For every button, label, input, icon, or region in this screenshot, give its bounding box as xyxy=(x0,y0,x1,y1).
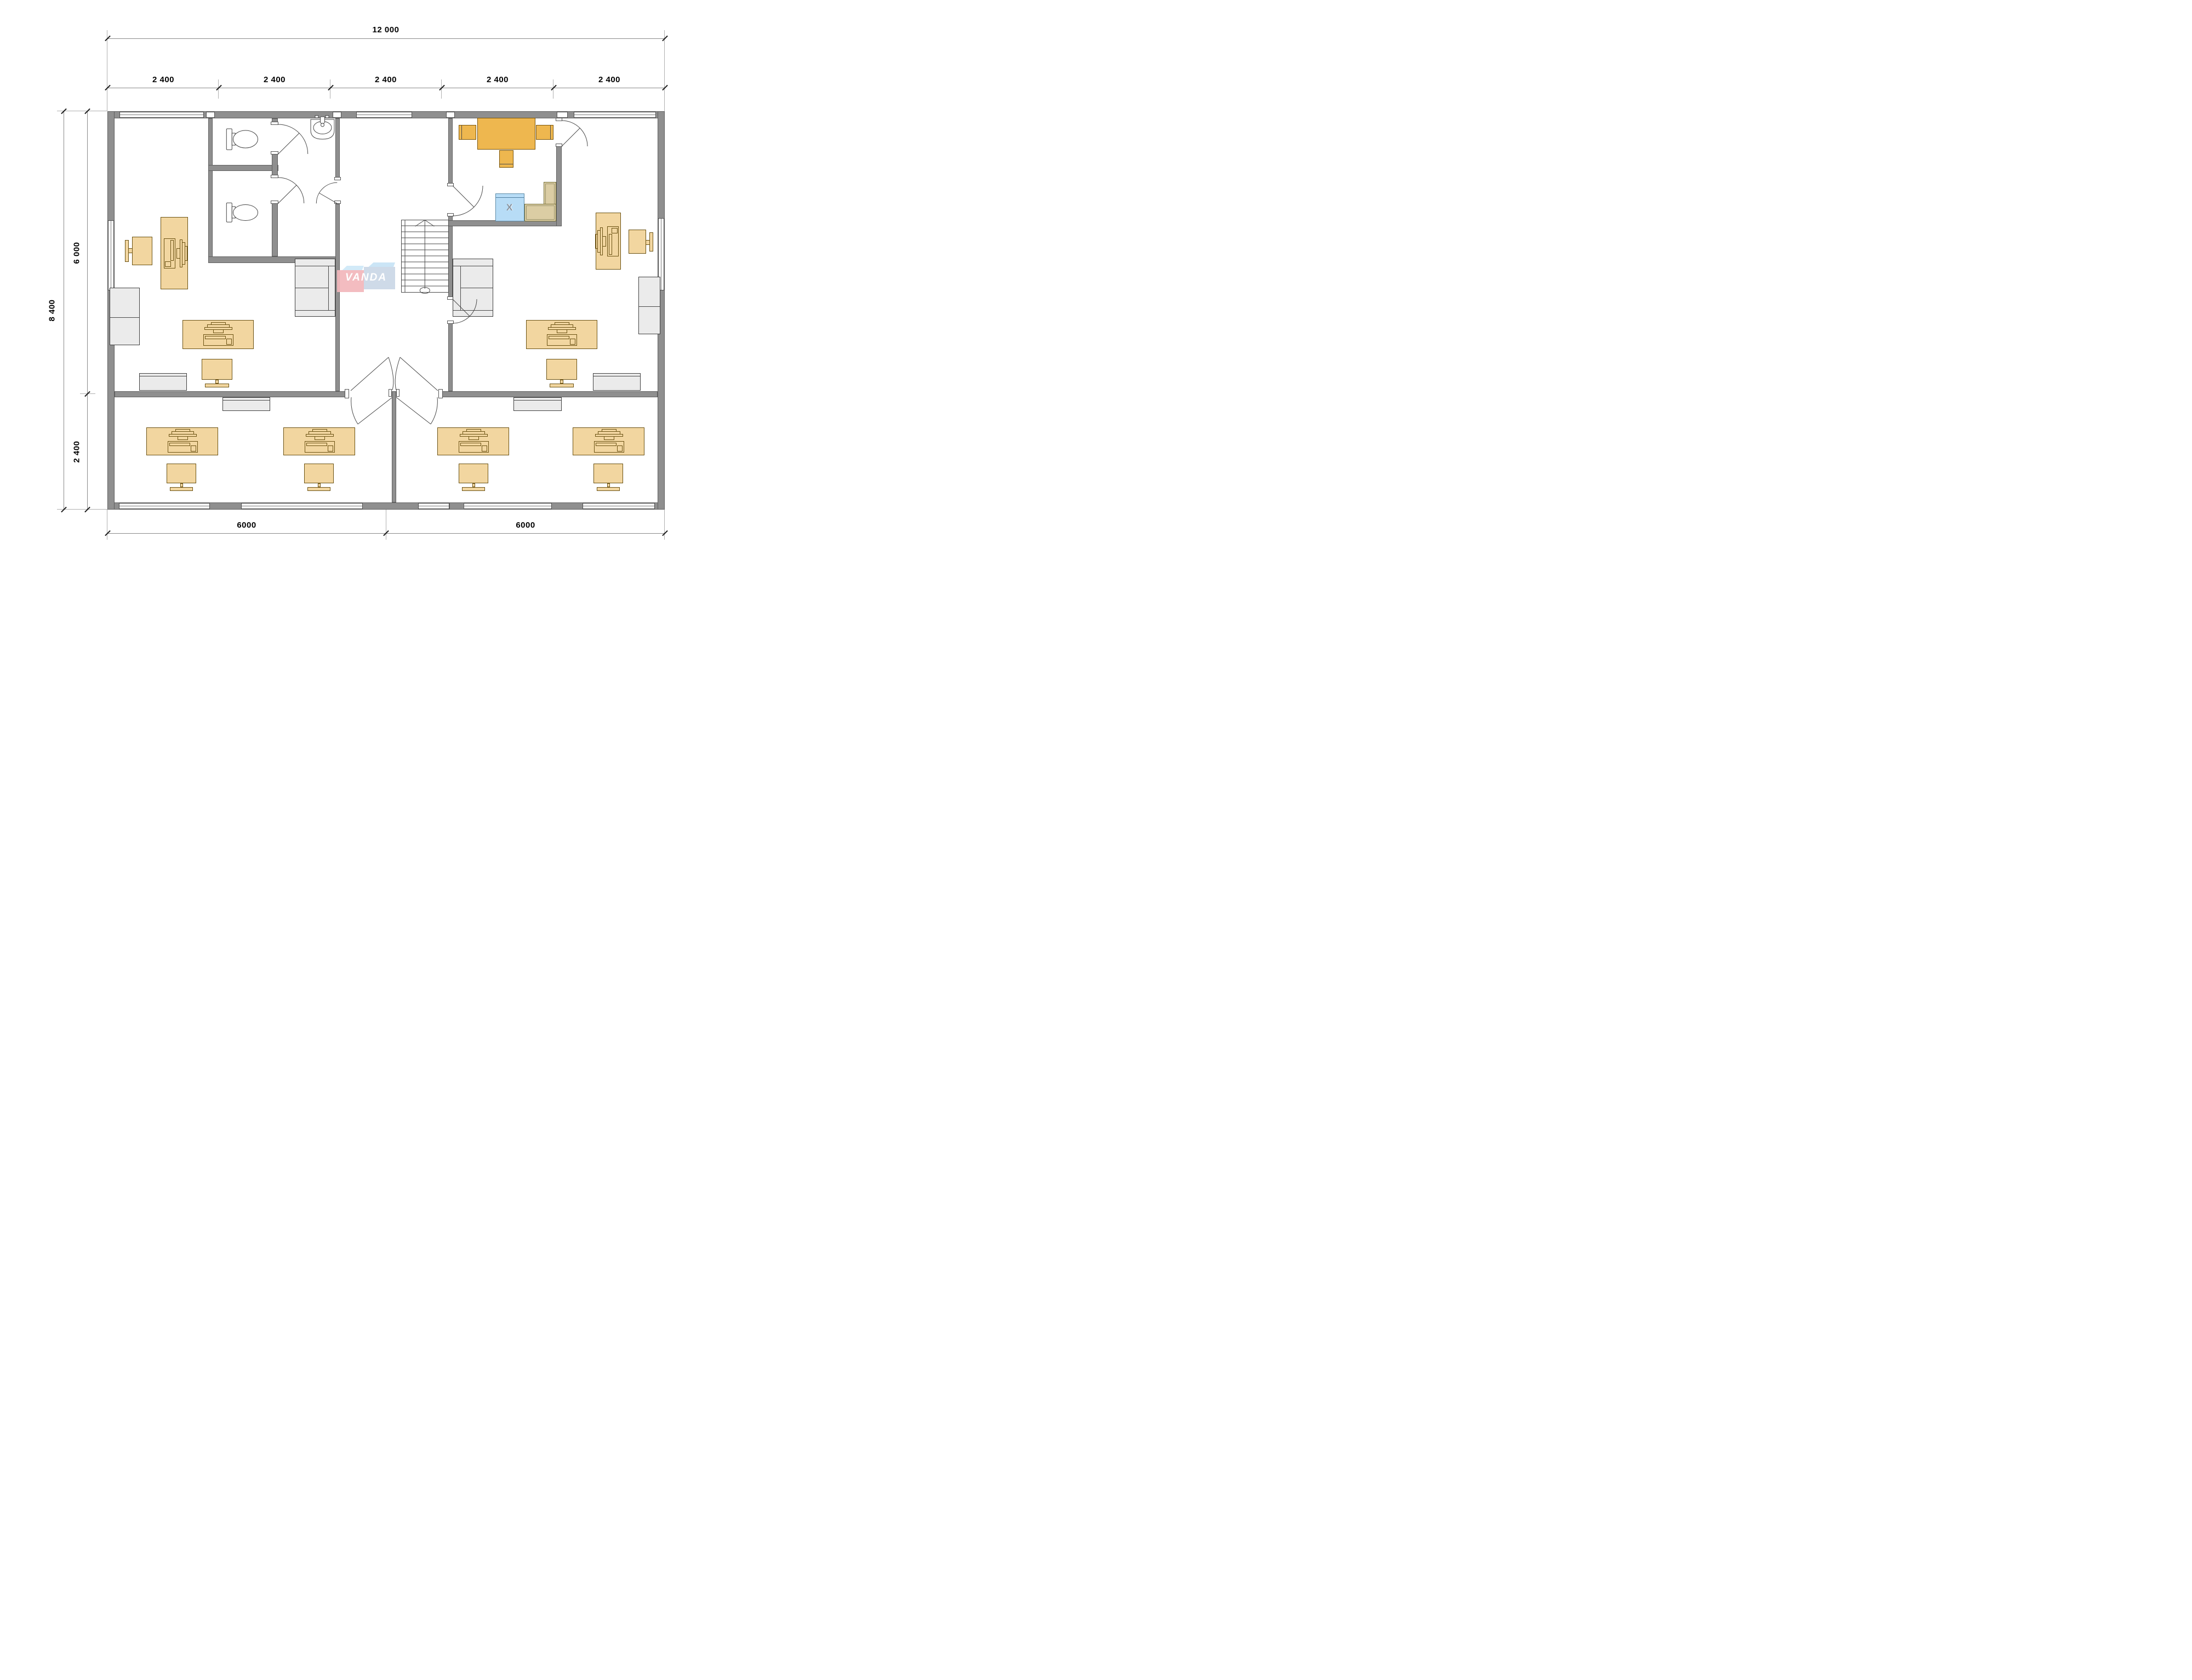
dimension-label-left-segment: 6 000 xyxy=(72,237,82,270)
office-chair-seat xyxy=(459,464,488,483)
computer-icon xyxy=(458,429,489,456)
sideboard xyxy=(139,373,187,391)
office-chair-seat xyxy=(304,464,334,483)
office-chair-base xyxy=(597,487,620,491)
desk xyxy=(437,427,509,455)
door-jamb xyxy=(556,144,562,147)
toilet xyxy=(226,129,258,150)
door-jamb xyxy=(438,389,443,398)
office-chair-stem xyxy=(560,380,563,384)
dimension-label-left-segment: 2 400 xyxy=(72,436,82,468)
kitchen-chair xyxy=(536,125,553,140)
wall-post xyxy=(449,502,464,510)
dimension-label-total-width: 12 000 xyxy=(373,25,399,35)
dimension-label-top-segment: 2 400 xyxy=(152,75,174,84)
kitchen-chair xyxy=(459,125,476,140)
wall-bottom-rooms-center xyxy=(392,391,396,502)
wall-wc-right xyxy=(272,154,278,178)
dimension-label-bottom-segment: 6000 xyxy=(237,521,256,530)
dimension-line-top-segments xyxy=(107,88,665,88)
desk xyxy=(596,213,621,270)
kitchen-chair xyxy=(499,150,513,168)
door-jamb xyxy=(345,389,349,398)
wall-corridor-left xyxy=(335,118,340,180)
office-chair-base xyxy=(550,384,574,387)
desk xyxy=(573,427,644,455)
sideboard xyxy=(513,397,562,411)
window xyxy=(119,503,210,509)
door-jamb xyxy=(447,183,454,186)
dimension-label-top-segment: 2 400 xyxy=(598,75,620,84)
office-chair-seat xyxy=(593,464,623,483)
cabinet xyxy=(638,277,660,334)
desk xyxy=(182,320,254,349)
office-chair-stem xyxy=(180,483,183,487)
computer-icon xyxy=(595,226,622,257)
dimension-label-total-height: 8 400 xyxy=(48,294,57,327)
sofa xyxy=(295,259,335,317)
office-chair-seat xyxy=(202,359,232,380)
wall-wc-left xyxy=(208,118,213,263)
window xyxy=(574,112,656,118)
extension-line xyxy=(664,510,665,540)
floor-plan: 12 000 2 400 2 400 2 400 2 400 2 400 8 4… xyxy=(0,0,731,560)
wall-wc-middle xyxy=(208,165,278,171)
dimension-line-overall-width xyxy=(107,38,665,39)
wall-corridor-left xyxy=(335,204,340,391)
door-jamb xyxy=(271,201,278,204)
appliance-x-marker: X xyxy=(506,202,512,213)
office-chair-stem xyxy=(607,483,610,487)
door-jamb xyxy=(334,177,341,180)
door-jamb xyxy=(271,151,278,155)
window xyxy=(583,503,655,509)
dimension-line-overall-height xyxy=(64,111,64,510)
wall-cap xyxy=(446,112,455,118)
extension-line xyxy=(107,510,107,540)
sideboard xyxy=(593,373,641,391)
computer-icon xyxy=(161,238,187,269)
dimension-label-bottom-segment: 6000 xyxy=(516,521,535,530)
office-chair-seat xyxy=(546,359,577,380)
wall-corridor-right xyxy=(448,216,453,300)
toilet xyxy=(226,203,258,222)
sink xyxy=(311,116,334,139)
window xyxy=(108,220,114,290)
computer-icon xyxy=(304,429,335,456)
computer-icon xyxy=(546,322,578,349)
office-chair-seat xyxy=(132,237,152,265)
extension-line xyxy=(386,510,386,540)
wall-cap xyxy=(557,112,568,118)
office-chair-stem xyxy=(215,380,219,384)
logo-text: VANDA xyxy=(337,272,395,284)
dimension-label-top-segment: 2 400 xyxy=(375,75,397,84)
window xyxy=(119,112,204,118)
door-jamb xyxy=(556,118,562,121)
office-chair-stem xyxy=(318,483,321,487)
wall-divider-right xyxy=(439,391,658,397)
window xyxy=(418,503,449,509)
wall-wc-right xyxy=(272,203,278,256)
wall-corridor-right xyxy=(448,323,453,391)
office-chair-seat xyxy=(629,230,646,254)
wall-cap xyxy=(333,112,341,118)
wall-divider-left xyxy=(115,391,349,397)
wall-corridor-right xyxy=(448,118,453,186)
dimension-label-top-segment: 2 400 xyxy=(264,75,286,84)
office-chair-base xyxy=(205,384,229,387)
cabinet xyxy=(110,288,140,345)
wall-cap xyxy=(206,112,215,118)
wall-kitchen-right xyxy=(556,146,562,226)
window xyxy=(241,503,363,509)
door-jamb xyxy=(396,389,399,397)
extension-line xyxy=(107,30,107,111)
door-jamb xyxy=(271,175,278,178)
desk xyxy=(146,427,218,455)
door-jamb xyxy=(334,201,341,204)
sofa xyxy=(453,259,493,317)
office-chair-base xyxy=(462,487,485,491)
extension-line xyxy=(664,30,665,111)
door-jamb xyxy=(447,213,454,216)
sideboard xyxy=(222,397,270,411)
dimension-line-left-segments xyxy=(87,111,88,510)
door-jamb xyxy=(271,122,278,125)
window xyxy=(356,112,412,118)
window xyxy=(464,503,552,509)
vanda-watermark: VANDA xyxy=(337,262,395,293)
desk xyxy=(161,217,188,289)
dimension-label-top-segment: 2 400 xyxy=(487,75,509,84)
computer-icon xyxy=(593,429,625,456)
desk xyxy=(526,320,597,349)
door-jamb xyxy=(447,321,454,324)
office-chair-base xyxy=(307,487,330,491)
office-chair-back xyxy=(649,232,653,252)
staircase xyxy=(401,220,449,293)
office-chair-seat xyxy=(167,464,196,483)
computer-icon xyxy=(167,429,198,456)
kitchen-counter xyxy=(524,204,556,221)
office-chair-base xyxy=(170,487,193,491)
computer-icon xyxy=(203,322,234,349)
kitchen-table xyxy=(477,118,535,150)
door-jamb xyxy=(389,389,392,397)
desk xyxy=(283,427,355,455)
office-chair-stem xyxy=(472,483,475,487)
